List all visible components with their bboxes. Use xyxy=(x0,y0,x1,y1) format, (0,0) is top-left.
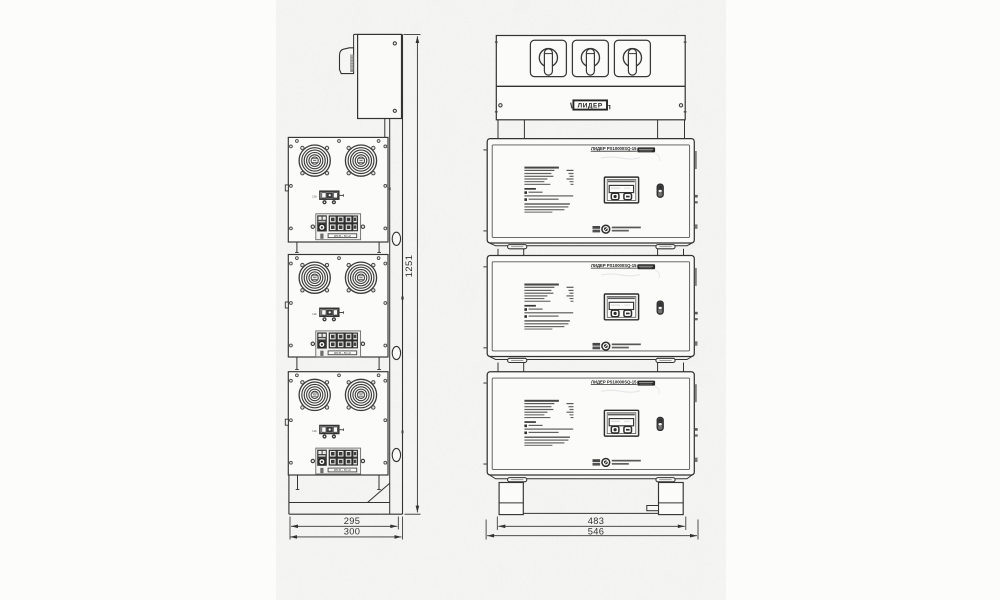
svg-text:300: 300 xyxy=(344,527,360,537)
svg-text:ЛИДЕР: ЛИДЕР xyxy=(578,103,603,110)
svg-text:12b: 12b xyxy=(312,195,317,199)
svg-text:483: 483 xyxy=(588,516,604,526)
svg-text:380 B ~ 50 Hz: 380 B ~ 50 Hz xyxy=(334,468,352,472)
svg-text:380 B ~ 50 Hz: 380 B ~ 50 Hz xyxy=(334,351,352,355)
svg-text:ЛИДЕР PS10000SQ-15: ЛИДЕР PS10000SQ-15 xyxy=(591,379,637,384)
svg-text:12b: 12b xyxy=(312,312,317,316)
svg-text:ЛИДЕР PS10000SQ-15: ЛИДЕР PS10000SQ-15 xyxy=(591,263,637,268)
svg-text:295: 295 xyxy=(344,516,360,526)
svg-text:546: 546 xyxy=(588,526,604,536)
svg-text:12b: 12b xyxy=(312,429,317,433)
svg-text:ЛИДЕР PS10000SQ-15: ЛИДЕР PS10000SQ-15 xyxy=(591,146,637,151)
svg-text:1251: 1251 xyxy=(404,255,415,278)
svg-text:380 B ~ 50 Hz: 380 B ~ 50 Hz xyxy=(334,234,352,238)
